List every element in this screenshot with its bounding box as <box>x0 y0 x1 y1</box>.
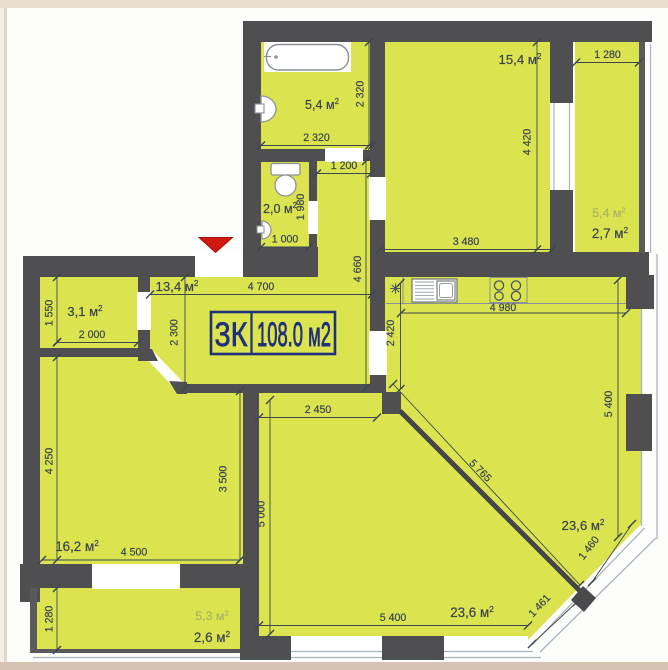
svg-text:4 660: 4 660 <box>352 256 364 283</box>
svg-text:13,4 м2: 13,4 м2 <box>156 279 199 294</box>
svg-text:1 000: 1 000 <box>272 234 299 246</box>
svg-text:3 480: 3 480 <box>453 236 480 248</box>
svg-text:1 280: 1 280 <box>44 606 56 633</box>
svg-text:2,7 м2: 2,7 м2 <box>592 225 629 241</box>
svg-text:4 500: 4 500 <box>121 547 148 559</box>
svg-text:2 320: 2 320 <box>303 132 330 144</box>
svg-text:4 420: 4 420 <box>522 129 534 156</box>
svg-text:2 000: 2 000 <box>79 329 106 341</box>
svg-text:3 500: 3 500 <box>218 466 230 493</box>
svg-text:3,1 м2: 3,1 м2 <box>67 304 103 319</box>
svg-text:2 300: 2 300 <box>169 319 181 346</box>
svg-text:1 280: 1 280 <box>594 49 621 61</box>
svg-text:16,2 м2: 16,2 м2 <box>55 538 99 554</box>
svg-text:5 400: 5 400 <box>603 391 615 418</box>
svg-text:5,4 м2: 5,4 м2 <box>305 97 339 112</box>
svg-text:5,3 м2: 5,3 м2 <box>195 608 228 623</box>
svg-text:2 420: 2 420 <box>385 320 397 347</box>
svg-text:2 450: 2 450 <box>305 404 332 416</box>
svg-text:23,6 м2: 23,6 м2 <box>450 604 494 620</box>
svg-text:23,6 м2: 23,6 м2 <box>562 518 605 533</box>
svg-text:1 550: 1 550 <box>44 300 56 327</box>
svg-text:4 980: 4 980 <box>490 302 517 314</box>
svg-text:2,6 м2: 2,6 м2 <box>194 629 231 645</box>
svg-text:5 000: 5 000 <box>256 501 268 528</box>
svg-text:3К: 3К <box>215 316 248 354</box>
svg-text:1 200: 1 200 <box>331 160 358 172</box>
svg-text:15,4 м2: 15,4 м2 <box>499 52 542 67</box>
svg-text:5 400: 5 400 <box>380 612 407 624</box>
svg-text:108.0 м2: 108.0 м2 <box>257 316 331 354</box>
svg-text:2 320: 2 320 <box>355 81 367 108</box>
svg-text:4 700: 4 700 <box>248 281 275 293</box>
svg-text:4 250: 4 250 <box>44 448 56 475</box>
svg-text:2,0 м2: 2,0 м2 <box>263 201 297 216</box>
svg-text:5,4 м2: 5,4 м2 <box>592 205 625 220</box>
